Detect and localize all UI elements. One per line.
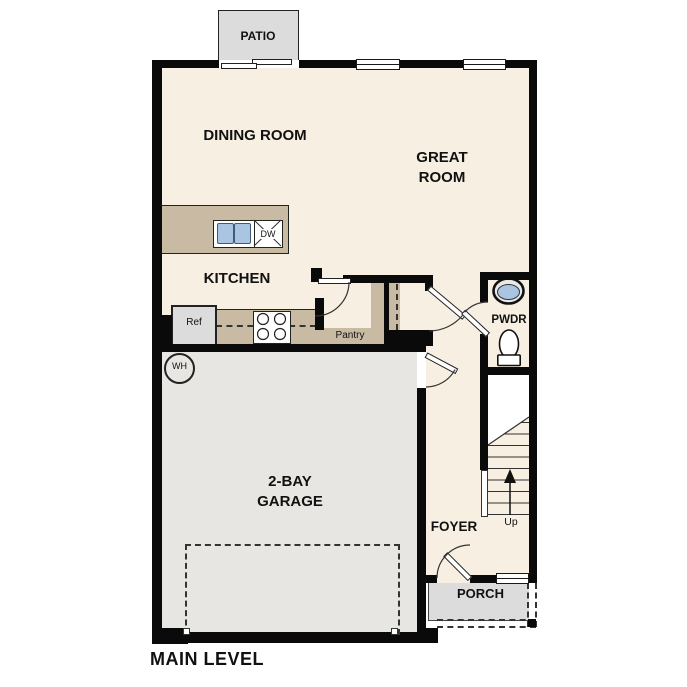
floor-plan: PATIO PORCH DW Ref Pantry bbox=[0, 0, 687, 687]
garage-door-track bbox=[183, 628, 190, 635]
up-label: Up bbox=[496, 516, 526, 528]
wall bbox=[480, 280, 488, 302]
stair-opening-sill bbox=[481, 470, 488, 517]
window-icon bbox=[496, 573, 529, 584]
closet-shelf bbox=[389, 283, 400, 330]
pantry-door-arc-icon bbox=[315, 282, 349, 316]
pantry-shelf bbox=[371, 283, 384, 330]
wall bbox=[480, 375, 488, 470]
garage-door-dashed bbox=[185, 544, 400, 635]
wall bbox=[384, 283, 389, 330]
refrigerator-label: Ref bbox=[171, 317, 217, 328]
wall bbox=[384, 330, 433, 346]
pwdr-label: PWDR bbox=[487, 313, 531, 328]
island-sink-basin bbox=[217, 223, 234, 244]
stove-burners-icon bbox=[253, 311, 289, 342]
garage-entry-door-arc-icon bbox=[426, 354, 459, 387]
foyer-label: FOYER bbox=[426, 518, 482, 536]
wall bbox=[162, 315, 172, 344]
wall bbox=[425, 575, 437, 583]
pwdr-sink-icon bbox=[492, 277, 525, 305]
garage-door-track bbox=[391, 628, 398, 635]
main-level-title: MAIN LEVEL bbox=[150, 648, 370, 671]
porch-label: PORCH bbox=[433, 586, 528, 603]
dishwasher-label: DW bbox=[258, 229, 278, 239]
dining-room-label: DINING ROOM bbox=[155, 126, 355, 146]
sliding-door-panel bbox=[252, 59, 292, 65]
sliding-door-panel bbox=[221, 63, 257, 69]
porch-post bbox=[528, 619, 536, 627]
front-door-arc-icon bbox=[437, 545, 470, 578]
wall bbox=[529, 60, 537, 583]
wall bbox=[343, 275, 433, 283]
wall bbox=[480, 367, 537, 375]
stairs bbox=[488, 375, 529, 515]
pantry-label: Pantry bbox=[316, 330, 384, 341]
patio-label: PATIO bbox=[218, 29, 298, 45]
pwdr-door-arc-icon bbox=[456, 302, 488, 334]
window-icon bbox=[463, 59, 506, 70]
window-icon bbox=[356, 59, 400, 70]
wall bbox=[417, 388, 426, 636]
closet-rod-dash bbox=[396, 284, 398, 330]
island-sink-basin bbox=[234, 223, 251, 244]
wall bbox=[470, 575, 497, 583]
wall bbox=[480, 272, 537, 280]
porch-overhang-dash bbox=[437, 626, 536, 628]
water-heater-label: WH bbox=[164, 361, 195, 371]
kitchen-label: KITCHEN bbox=[177, 269, 297, 289]
great-room-label: GREAT ROOM bbox=[396, 148, 488, 187]
porch-overhang-dash bbox=[437, 619, 536, 621]
toilet-icon bbox=[497, 329, 521, 367]
garage-label: 2-BAY GARAGE bbox=[240, 472, 340, 511]
